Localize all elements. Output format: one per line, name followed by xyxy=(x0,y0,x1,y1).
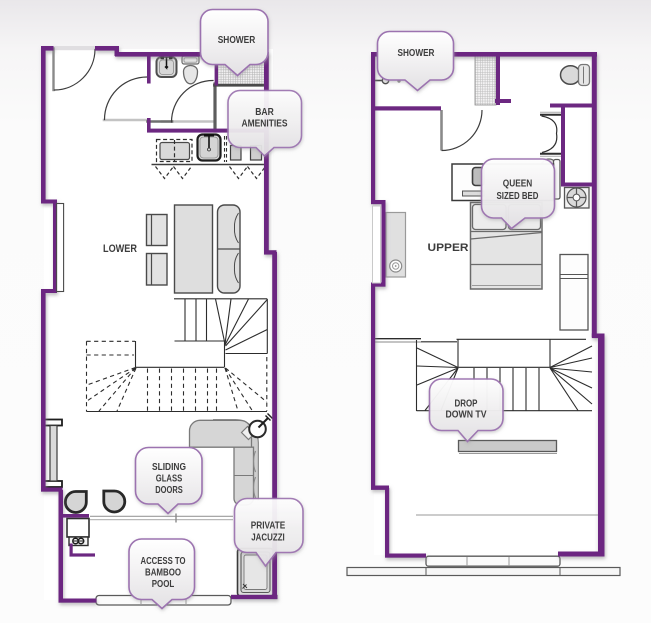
svg-text:POOL: POOL xyxy=(152,578,175,590)
svg-text:GLASS: GLASS xyxy=(156,473,183,485)
svg-text:SHOWER: SHOWER xyxy=(398,47,435,59)
svg-text:AMENITIES: AMENITIES xyxy=(242,118,288,130)
svg-text:ACCESS TO: ACCESS TO xyxy=(141,555,186,567)
svg-text:SHOWER: SHOWER xyxy=(218,34,256,46)
svg-text:UPPER: UPPER xyxy=(428,242,469,254)
svg-text:QUEEN: QUEEN xyxy=(503,178,533,190)
svg-text:PRIVATE: PRIVATE xyxy=(251,520,286,532)
svg-text:DOWN TV: DOWN TV xyxy=(446,409,487,421)
svg-text:JACUZZI: JACUZZI xyxy=(251,532,285,544)
svg-text:BAR: BAR xyxy=(255,106,274,118)
svg-text:SLIDING: SLIDING xyxy=(152,461,186,473)
svg-text:DOORS: DOORS xyxy=(155,484,183,496)
svg-text:BAMBOO: BAMBOO xyxy=(145,567,181,579)
svg-text:SIZED BED: SIZED BED xyxy=(497,190,539,202)
svg-text:LOWER: LOWER xyxy=(103,243,137,255)
